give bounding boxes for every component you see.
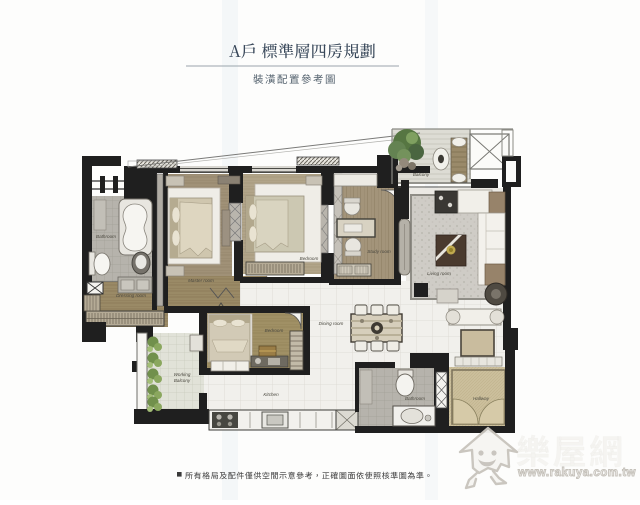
svg-text:Bathroom: Bathroom xyxy=(96,234,116,239)
svg-text:Kitchen: Kitchen xyxy=(263,392,279,397)
svg-text:Bathroom: Bathroom xyxy=(405,396,425,401)
svg-text:Living room: Living room xyxy=(427,271,451,276)
svg-text:Master room: Master room xyxy=(188,278,214,283)
svg-text:Bedroom: Bedroom xyxy=(265,328,284,333)
svg-text:Working: Working xyxy=(174,372,191,377)
svg-text:Balcony: Balcony xyxy=(174,378,191,383)
svg-text:Bedroom: Bedroom xyxy=(300,256,319,261)
svg-text:www.rakuya.com.tw: www.rakuya.com.tw xyxy=(517,467,636,479)
svg-text:Dining room: Dining room xyxy=(319,321,344,326)
svg-text:Balcony: Balcony xyxy=(413,172,430,177)
svg-text:Hallway: Hallway xyxy=(473,396,490,401)
svg-text:Study room: Study room xyxy=(367,249,391,254)
svg-text:Dressing room: Dressing room xyxy=(116,293,146,298)
